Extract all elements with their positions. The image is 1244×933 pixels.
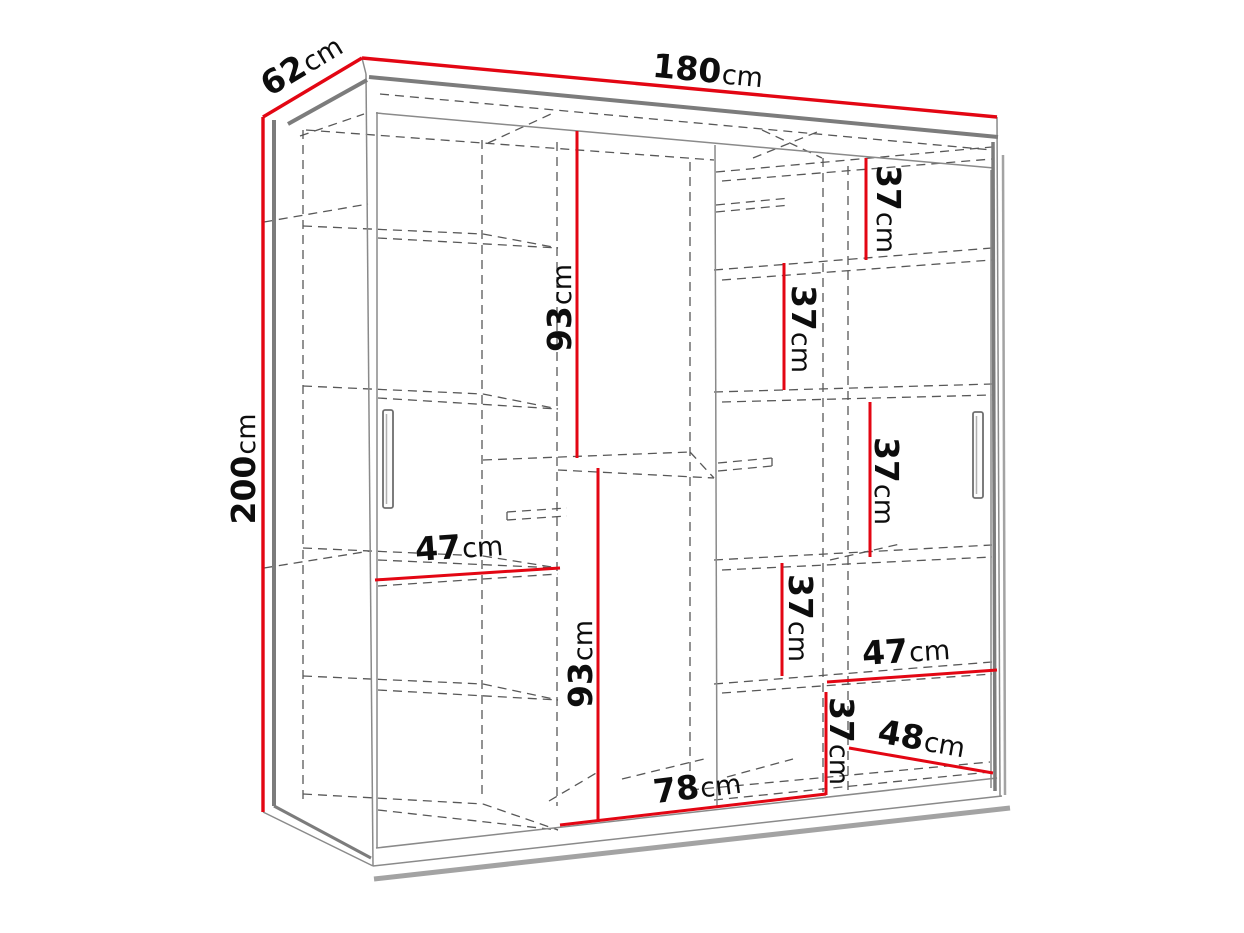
shelfR4-a bbox=[714, 545, 992, 560]
wardrobe-dimension-diagram: 62cm 180cm 200cm 93cm 93cm 37cm 37cm 37c… bbox=[0, 0, 1244, 933]
shelfD-back bbox=[303, 676, 483, 684]
railR-b bbox=[716, 205, 790, 212]
dashed-side-panel-h1 bbox=[264, 204, 368, 222]
dim-label-37-4: 37cm bbox=[781, 574, 820, 662]
dim-label-47-left: 47cm bbox=[414, 524, 505, 569]
shelfR1-b bbox=[722, 159, 992, 181]
shelfA-back bbox=[303, 226, 483, 234]
dimension-labels: 62cm 180cm 200cm 93cm 93cm 37cm 37cm 37c… bbox=[224, 25, 969, 811]
shelfM-rail-b bbox=[718, 466, 772, 471]
dim-label-37-2: 37cm bbox=[784, 285, 823, 373]
front-right-edge bbox=[997, 117, 1000, 797]
dim-label-37-3: 37cm bbox=[867, 437, 906, 525]
dashed-diag-top-left-corner bbox=[300, 114, 364, 136]
dashed-diag-left-col-top bbox=[488, 114, 551, 143]
dim-label-93-upper: 93cm bbox=[540, 264, 579, 352]
shelfM-diag bbox=[690, 452, 714, 478]
dim-line-47-right bbox=[827, 670, 997, 682]
apex-join bbox=[362, 58, 366, 74]
dim-line-47-left bbox=[375, 568, 560, 580]
dim-label-depth-62: 62cm bbox=[253, 25, 349, 104]
shelfR4-b bbox=[722, 557, 992, 570]
dim-label-47-right: 47cm bbox=[861, 628, 952, 673]
shelfD-front bbox=[378, 690, 558, 700]
floor-left-back bbox=[303, 794, 483, 804]
railR-a bbox=[716, 198, 790, 205]
dim-label-48: 48cm bbox=[875, 712, 969, 766]
bracket-a bbox=[507, 508, 567, 512]
shelfM-rail-a bbox=[718, 458, 772, 463]
dim-label-37-1: 37cm bbox=[869, 165, 908, 253]
shelfR5-b bbox=[722, 674, 992, 693]
shelfR4-diag bbox=[830, 544, 900, 560]
thick-side-bottom bbox=[274, 806, 371, 858]
bracket-b bbox=[507, 516, 567, 520]
diagram-canvas: 62cm 180cm 200cm 93cm 93cm 37cm 37cm 37c… bbox=[0, 0, 1244, 933]
shelfM-back bbox=[483, 452, 690, 460]
shelfR2-b bbox=[722, 260, 992, 280]
dashed-diag-top-x1 bbox=[753, 130, 822, 158]
shelfC-front-bottom bbox=[378, 574, 558, 586]
shelfM-front bbox=[558, 470, 714, 478]
door-meeting-divider bbox=[715, 145, 717, 808]
side-bottom-edge bbox=[263, 812, 373, 866]
shelfR3-a bbox=[714, 384, 992, 392]
left-door-handle bbox=[383, 410, 393, 508]
shelfR1-a bbox=[716, 147, 992, 172]
dim-label-height-200: 200cm bbox=[224, 413, 263, 524]
front-left-edge bbox=[366, 74, 373, 866]
right-door-handle bbox=[973, 412, 983, 498]
base-shadow bbox=[374, 808, 1010, 879]
right-shadow bbox=[1003, 155, 1005, 795]
shelfR3-b bbox=[722, 395, 992, 402]
dim-label-93-lower: 93cm bbox=[561, 620, 600, 708]
shelfB-back bbox=[303, 386, 483, 394]
dashed-side-panel-h2 bbox=[264, 551, 370, 568]
dim-label-37-5: 37cm bbox=[822, 697, 861, 785]
door-top-edge bbox=[376, 113, 994, 168]
thick-right-inner bbox=[993, 142, 995, 791]
shelfR2-a bbox=[714, 248, 992, 270]
